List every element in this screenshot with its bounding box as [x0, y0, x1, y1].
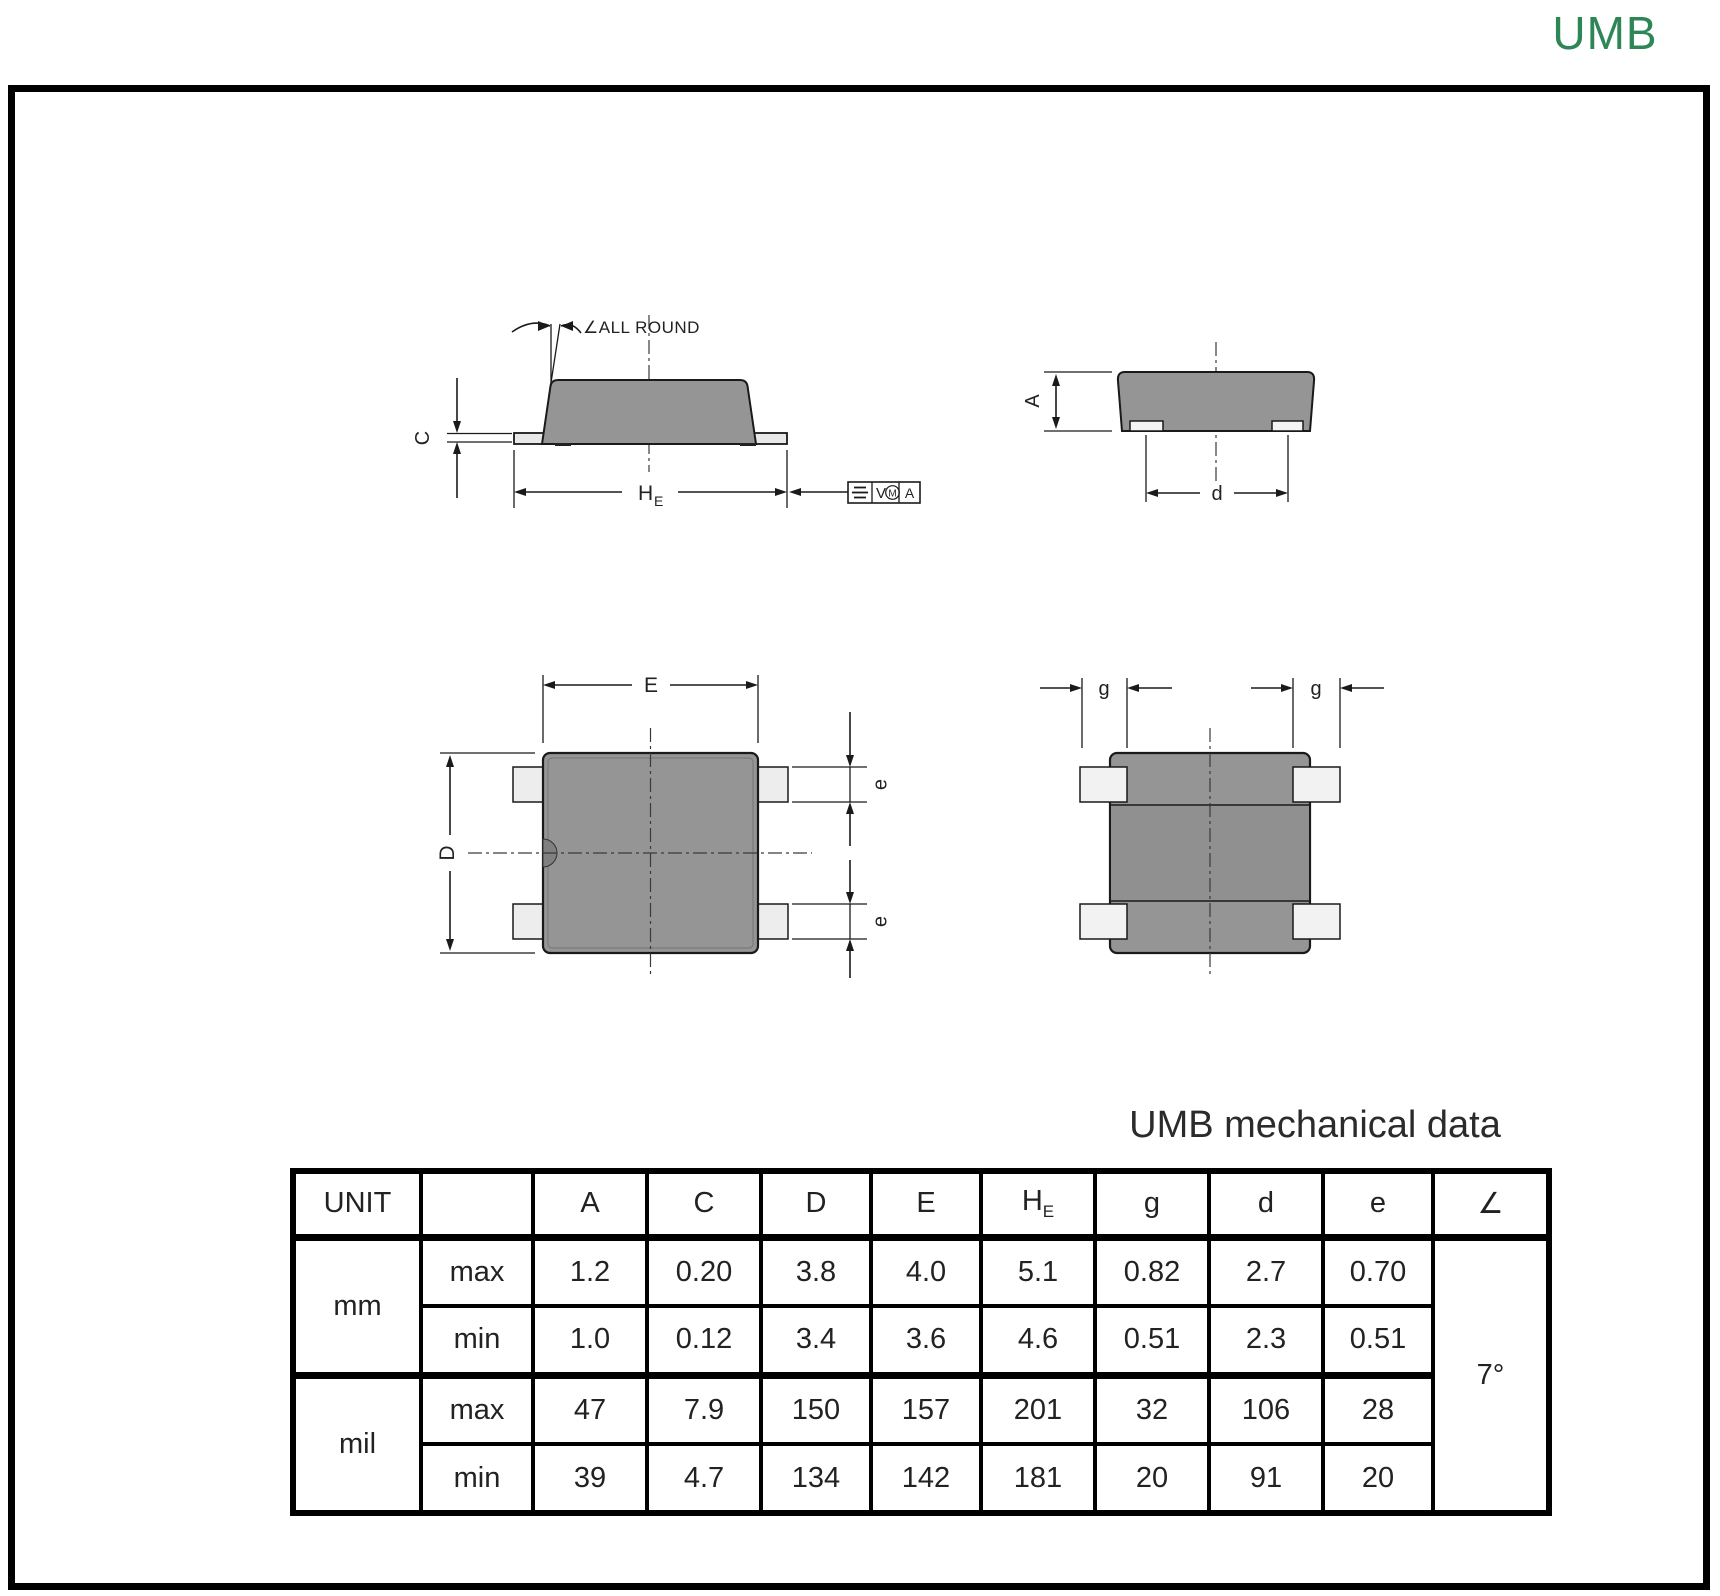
table-cell: 32 — [1095, 1375, 1209, 1444]
lead — [1293, 767, 1340, 802]
datasheet-page: UMB ∠ALL ROUND C — [0, 0, 1720, 1596]
table-cell: 0.12 — [647, 1306, 761, 1375]
dim-e-lead-label: e — [870, 779, 892, 790]
tolerance-zone-label: V — [876, 485, 886, 502]
dim-he-label: H — [638, 482, 653, 505]
lead — [756, 767, 788, 802]
table-cell: 4.6 — [981, 1306, 1095, 1375]
package-body — [542, 380, 756, 444]
table-cell: 134 — [761, 1444, 871, 1513]
he-main: H — [1022, 1185, 1043, 1217]
table-cell: 0.51 — [1323, 1306, 1433, 1375]
table-cell: 106 — [1209, 1375, 1323, 1444]
dim-d-body-label: D — [436, 845, 459, 860]
dim-d: d — [1146, 435, 1288, 505]
unit-cell-mm: mm — [293, 1237, 421, 1375]
lead — [1080, 904, 1127, 939]
table-cell: 4.0 — [871, 1237, 981, 1306]
table-cell: 3.8 — [761, 1237, 871, 1306]
header-cell-blank — [421, 1171, 533, 1237]
lead — [1293, 904, 1340, 939]
table-cell: 150 — [761, 1375, 871, 1444]
dim-he: H E — [514, 450, 787, 509]
dim-g-label: g — [1310, 678, 1321, 700]
angle-note-label: ∠ALL ROUND — [583, 318, 700, 337]
header-cell-unit: UNIT — [293, 1171, 421, 1237]
header-cell-angle: ∠ — [1433, 1171, 1549, 1237]
table-cell: 142 — [871, 1444, 981, 1513]
header-cell-d: d — [1209, 1171, 1323, 1237]
table-cell: 20 — [1323, 1444, 1433, 1513]
table-row: min 39 4.7 134 142 181 20 91 20 — [293, 1444, 1549, 1513]
lead — [756, 904, 788, 939]
dim-c-label: C — [412, 431, 434, 445]
table-row: min 1.0 0.12 3.4 3.6 4.6 0.51 2.3 0.51 — [293, 1306, 1549, 1375]
lead-foot — [1272, 421, 1303, 431]
table-cell: 2.3 — [1209, 1306, 1323, 1375]
dim-g-label: g — [1098, 678, 1109, 700]
header-row: UNIT A C D E HE g d e ∠ — [293, 1171, 1549, 1237]
dim-a-label: A — [1022, 394, 1044, 408]
row-label: min — [421, 1306, 533, 1375]
tolerance-frame: V M A — [789, 482, 920, 503]
row-label: max — [421, 1237, 533, 1306]
header-cell-e: e — [1323, 1171, 1433, 1237]
dim-e-lead-top: e — [792, 712, 892, 846]
table-cell: 157 — [871, 1375, 981, 1444]
table-cell: 2.7 — [1209, 1237, 1323, 1306]
table-cell: 3.4 — [761, 1306, 871, 1375]
unit-cell-mil: mil — [293, 1375, 421, 1513]
lead — [513, 767, 545, 802]
side-view-drawing: ∠ALL ROUND C H E — [350, 260, 950, 520]
dim-d-label: d — [1211, 483, 1222, 505]
table-cell: 47 — [533, 1375, 647, 1444]
top-view-drawing: E D e — [380, 600, 900, 980]
dim-a: A — [1022, 372, 1112, 431]
end-view-drawing: A d — [1000, 290, 1360, 510]
dim-he-sub-label: E — [654, 493, 663, 509]
dim-e-body-label: E — [644, 674, 658, 697]
table-cell: 20 — [1095, 1444, 1209, 1513]
table-row: mil max 47 7.9 150 157 201 32 106 28 — [293, 1375, 1549, 1444]
angle-value-cell: 7° — [1433, 1237, 1549, 1513]
table-cell: 39 — [533, 1444, 647, 1513]
datum-a-label: A — [905, 485, 915, 501]
table-cell: 1.0 — [533, 1306, 647, 1375]
table-row: mm max 1.2 0.20 3.8 4.0 5.1 0.82 2.7 0.7… — [293, 1237, 1549, 1306]
he-sub: E — [1043, 1202, 1054, 1221]
table-cell: 91 — [1209, 1444, 1323, 1513]
dim-e-lead-bottom: e — [792, 860, 892, 978]
header-cell-g: g — [1095, 1171, 1209, 1237]
header-cell-he: HE — [981, 1171, 1095, 1237]
lead — [1080, 767, 1127, 802]
angle-callout: ∠ALL ROUND — [512, 318, 700, 386]
mechanical-data-table: UNIT A C D E HE g d e ∠ mm max 1.2 0.20 … — [290, 1168, 1552, 1516]
dim-g-left: g — [1040, 678, 1172, 748]
header-cell-a: A — [533, 1171, 647, 1237]
table-cell: 0.20 — [647, 1237, 761, 1306]
row-label: min — [421, 1444, 533, 1513]
bottom-view-drawing: g g — [950, 600, 1410, 980]
dim-c: C — [412, 378, 512, 498]
page-title: UMB — [1530, 6, 1680, 60]
header-cell-c: C — [647, 1171, 761, 1237]
table-cell: 7.9 — [647, 1375, 761, 1444]
table-cell: 4.7 — [647, 1444, 761, 1513]
table-cell: 0.82 — [1095, 1237, 1209, 1306]
row-label: max — [421, 1375, 533, 1444]
dim-e-lead-label: e — [870, 916, 892, 927]
header-cell-e-cap: E — [871, 1171, 981, 1237]
table-cell: 181 — [981, 1444, 1095, 1513]
table-cell: 5.1 — [981, 1237, 1095, 1306]
table-title: UMB mechanical data — [1090, 1104, 1540, 1147]
table-cell: 0.51 — [1095, 1306, 1209, 1375]
table-cell: 0.70 — [1323, 1237, 1433, 1306]
dim-g-right: g — [1251, 678, 1384, 748]
table-cell: 28 — [1323, 1375, 1433, 1444]
table-cell: 1.2 — [533, 1237, 647, 1306]
table-cell: 201 — [981, 1375, 1095, 1444]
table-cell: 3.6 — [871, 1306, 981, 1375]
header-cell-d-cap: D — [761, 1171, 871, 1237]
lead — [513, 904, 545, 939]
lead-foot — [1130, 421, 1163, 431]
modifier-m-label: M — [888, 489, 896, 500]
